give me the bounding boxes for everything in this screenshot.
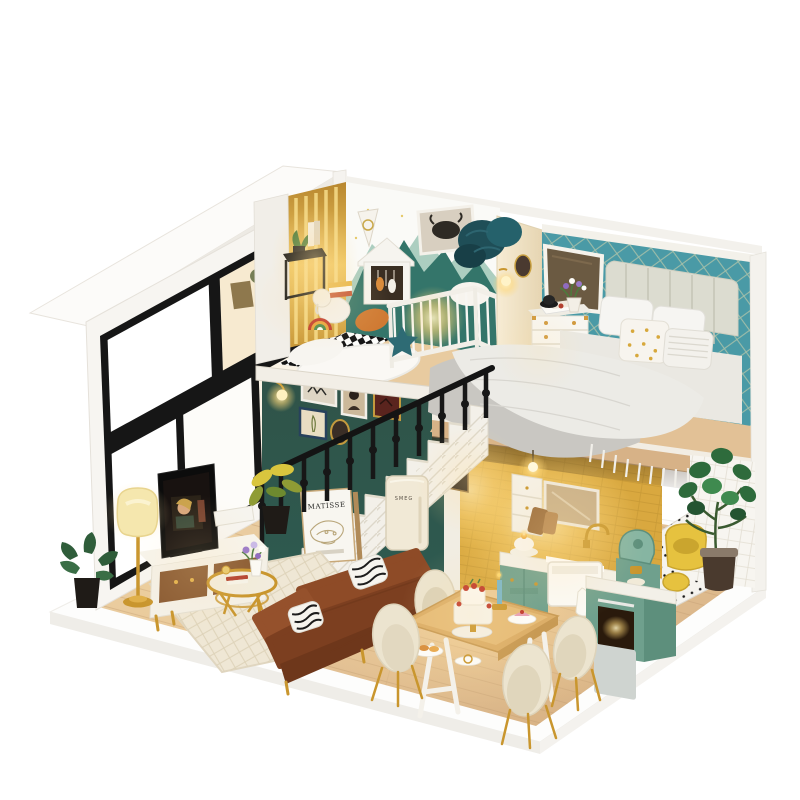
monstera-pot (74, 578, 100, 608)
tv-picture (171, 495, 206, 531)
picture-frame-botanical (300, 408, 326, 439)
gold-cup (222, 566, 230, 574)
lamp-shade (117, 488, 158, 537)
dollhouse-photo: SMEG MATISSE (0, 0, 800, 800)
croton-pot (262, 506, 290, 534)
fridge-logo: SMEG (395, 496, 414, 502)
retro-fridge: SMEG (386, 476, 428, 550)
wall-sconce-living (266, 382, 296, 412)
table-books (308, 221, 320, 247)
tub-ottoman (663, 573, 689, 591)
hanging-clothes-white (388, 279, 396, 293)
hanging-clothes-orange (376, 277, 384, 291)
plant-pot (700, 548, 738, 591)
oven-glow (602, 616, 630, 640)
oven-island (586, 576, 676, 700)
oval-portrait (515, 255, 531, 277)
dollhouse-scene: SMEG MATISSE (0, 0, 800, 800)
gold-dot-pillow (619, 318, 670, 363)
ribbed-pillow (663, 328, 714, 370)
book-stack (328, 281, 352, 298)
nursery-corner-post (254, 194, 290, 364)
oven (594, 600, 636, 700)
